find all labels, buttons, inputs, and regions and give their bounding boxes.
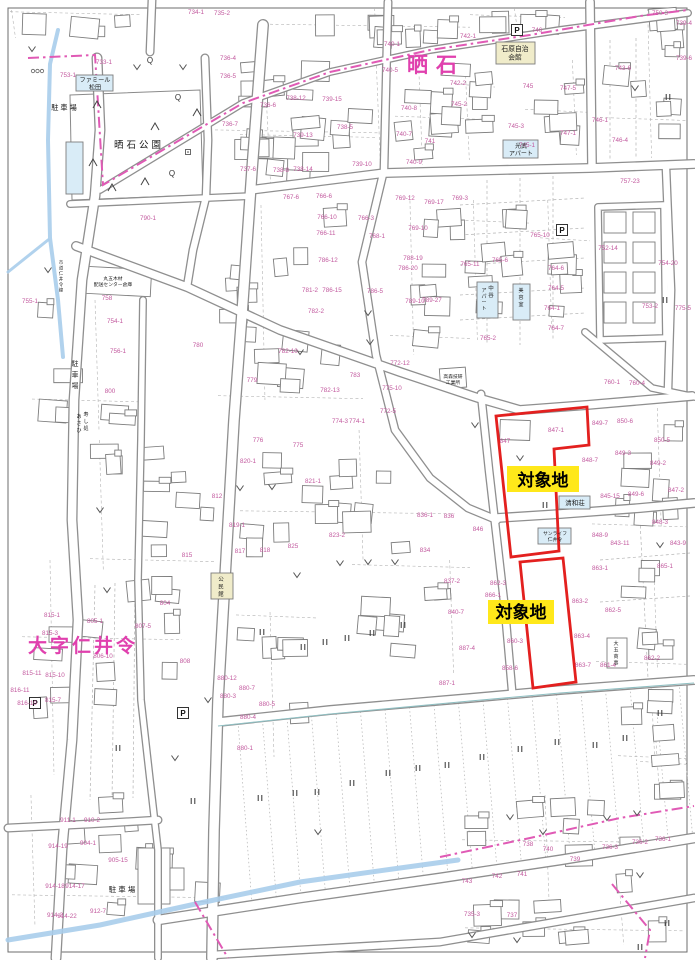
building: [659, 782, 684, 799]
parcel-number: 887-1: [439, 680, 456, 687]
facility-label-char: し: [83, 419, 88, 425]
facility-label-char: 室: [518, 301, 523, 308]
parcel-number: 850-5: [654, 437, 671, 444]
building: [604, 302, 626, 323]
parcel-number: 776: [253, 437, 264, 444]
broadleaf-tree-symbol: Q: [169, 169, 175, 178]
building: [441, 107, 461, 126]
parcel-number: 736-2: [632, 839, 649, 846]
parcel-number: 779: [247, 377, 258, 384]
building-labeled: [66, 142, 83, 194]
facility-label-char: 大: [613, 640, 618, 647]
building: [391, 541, 410, 553]
building: [482, 115, 494, 121]
parcel-number: 849-2: [650, 460, 667, 467]
parcel-number: 782-10: [278, 348, 298, 355]
parcel-number: 786-12: [318, 257, 338, 264]
building: [422, 264, 446, 277]
parcel-number: 789-27: [422, 297, 442, 304]
parcel-number: 745-3: [508, 123, 525, 130]
parcel-number: 775-10: [382, 385, 402, 392]
parcel-number: 910-2: [84, 817, 101, 824]
parcel-number: 904-1: [80, 840, 97, 847]
parcel-number: 766-11: [316, 230, 336, 237]
parcel-number: 740-5: [382, 67, 399, 74]
parcel-number: 849-3: [615, 450, 632, 457]
building: [634, 703, 643, 709]
parcel-number: 880-4: [240, 714, 257, 721]
building: [533, 796, 545, 802]
parcel-number: 737: [507, 912, 518, 919]
parcel-number: 741: [425, 138, 436, 145]
parcel-number: 865-1: [657, 563, 674, 570]
building: [125, 410, 137, 416]
building: [642, 632, 658, 645]
facility-label: 清和荘: [565, 498, 585, 507]
parcel-number: 738-14: [293, 166, 313, 173]
parcel-number: 775-5: [675, 305, 692, 312]
building: [444, 88, 454, 94]
parcel-number: 911-1: [60, 817, 76, 824]
parcel-number: 742-1: [460, 33, 477, 40]
building: [315, 504, 338, 523]
facility-label-char: 車: [72, 370, 79, 379]
building: [663, 640, 674, 646]
facility-label-char: 駐: [72, 359, 79, 368]
building: [339, 459, 357, 477]
parcel-number: 774-1: [349, 418, 366, 425]
parcel-number: 735-3: [464, 911, 481, 918]
facility-label-char: 容: [518, 294, 523, 301]
parcel-number: 764-1: [544, 305, 561, 312]
facility-label: 高森技研: [443, 373, 462, 380]
building: [47, 299, 54, 305]
building: [405, 89, 432, 103]
building: [273, 137, 295, 159]
facility-label-char: 場: [72, 381, 79, 390]
building: [550, 798, 575, 817]
target-site-label-2: 対象地: [488, 600, 554, 624]
parcel-number: 745: [523, 83, 534, 90]
parcel-number: 750-3: [652, 10, 669, 17]
building: [633, 272, 655, 293]
building: [171, 472, 186, 483]
parcel-number: 738: [523, 841, 534, 848]
parcel-number: 743: [462, 878, 473, 885]
facility-label: 駐車場: [51, 103, 79, 112]
parcel-number: 758: [102, 295, 113, 302]
building: [419, 284, 436, 297]
parcel-number: 742-2: [450, 80, 467, 87]
building: [534, 900, 561, 914]
building: [273, 258, 288, 277]
building: [114, 15, 130, 28]
parcel-number: 863-4: [574, 633, 591, 640]
building: [294, 248, 308, 265]
building: [94, 689, 117, 706]
parcel-number: 815-7: [45, 697, 62, 704]
parcel-number: 747-1: [560, 130, 577, 137]
facility-label: 仁井令: [548, 536, 563, 543]
facility-label: 丸五木材: [103, 275, 122, 282]
parcel-number: 786-15: [322, 287, 342, 294]
parcel-number: 807-5: [135, 623, 152, 630]
parcel-number: 836-1: [417, 512, 434, 519]
parcel-number: 740-1: [384, 41, 401, 48]
parcel-number: 769-3: [452, 195, 469, 202]
culvert-symbol: [36, 69, 39, 72]
parcel-number: 790-1: [140, 215, 157, 222]
building: [633, 242, 655, 263]
parcel-number: 847-1: [548, 427, 565, 434]
parcel-number: 765-11: [460, 261, 480, 268]
building: [176, 492, 201, 508]
building: [390, 643, 416, 658]
facility-label-char: 館: [218, 590, 224, 598]
building: [118, 899, 126, 905]
parcel-number: 739-15: [322, 96, 342, 103]
parcel-number: 772-5: [380, 408, 397, 415]
facility-label-char: ト: [481, 306, 486, 312]
facility-label-char: 中: [488, 284, 494, 292]
parcel-number: 817: [235, 548, 246, 555]
building: [263, 453, 282, 469]
parcel-number: 764-6: [548, 265, 565, 272]
parcel-number: 774-3: [332, 418, 349, 425]
facility-label: 松田: [89, 84, 101, 92]
building: [152, 576, 172, 594]
parcel-number: 738-12: [286, 95, 306, 102]
facility-label: 石原自治: [501, 44, 528, 53]
facility-label: ファミール: [80, 77, 111, 84]
parcel-number: 866-1: [485, 592, 502, 599]
building: [450, 16, 459, 22]
parcel-number: 847-2: [668, 487, 685, 494]
parcel-number: 848-3: [652, 519, 669, 526]
parcel-number: 804: [160, 600, 171, 607]
building: [329, 501, 339, 507]
parcel-number: 860-3: [507, 638, 524, 645]
building: [99, 835, 122, 853]
parcel-number: 880-12: [217, 675, 237, 682]
building: [437, 20, 458, 39]
building: [549, 113, 577, 132]
building: [604, 212, 626, 233]
facility-label-char: 谷: [488, 291, 494, 299]
building: [467, 831, 486, 845]
parcel-number: 812: [212, 493, 223, 500]
facility-label: 配送センター倉庫: [94, 281, 133, 288]
building: [428, 327, 439, 333]
building: [648, 921, 666, 942]
parcel-number: 780: [193, 342, 204, 349]
building: [604, 272, 626, 293]
parcel-number: 818: [260, 547, 271, 554]
building: [22, 13, 46, 35]
cadastral-map-page: QQQPPPP733-1753-1736-4736-5736-7736-6790…: [0, 0, 695, 960]
cadastral-map: QQQPPPP733-1753-1736-4736-5736-7736-6790…: [0, 0, 695, 960]
building: [376, 471, 391, 483]
parcel-number: 863-7: [575, 662, 592, 669]
facility-label: 光武: [515, 142, 527, 150]
building: [69, 16, 99, 39]
parcel-number: 815: [182, 552, 193, 559]
building: [675, 421, 683, 427]
parcel-number: 772-12: [390, 360, 410, 367]
parcel-number: 843-11: [610, 540, 630, 547]
parcel-number: 765-2: [480, 335, 497, 342]
culvert-symbol: [31, 69, 34, 72]
parcel-number: 800: [105, 388, 116, 395]
building: [437, 208, 462, 227]
road-surface: [150, 0, 152, 52]
building: [392, 26, 403, 32]
parcel-number: 887-4: [459, 645, 476, 652]
building: [547, 242, 574, 260]
building: [505, 209, 527, 229]
parcel-number: 862-3: [490, 580, 507, 587]
parcel-number: 760-4: [629, 380, 646, 387]
building: [164, 613, 179, 634]
parcel-number: 880-5: [259, 701, 276, 708]
building: [291, 116, 320, 131]
building: [621, 468, 650, 487]
parcel-number: 739-4: [676, 20, 693, 27]
facility-label-char: 五: [613, 648, 618, 654]
facility-label: 会館: [508, 53, 522, 62]
parcel-number: 825: [288, 543, 299, 550]
parcel-number: 820-1: [240, 458, 257, 465]
monument-symbol: [187, 151, 189, 153]
parcel-number: 738-5: [337, 124, 354, 131]
facility-label-char: 美: [518, 287, 523, 294]
building: [639, 568, 655, 582]
parcel-number: 880-1: [237, 745, 254, 752]
parcel-number: 766-6: [316, 193, 333, 200]
building: [415, 25, 422, 31]
building: [479, 812, 489, 818]
parcel-number: 747-5: [560, 85, 577, 92]
parcel-number: 914-18: [45, 883, 65, 890]
facility-label: アパート: [509, 151, 533, 158]
parcel-number: 736-7: [222, 121, 239, 128]
broadleaf-tree-symbol: Q: [175, 93, 181, 102]
facility-label-char: 事: [613, 660, 618, 667]
parcel-number: 782-13: [320, 387, 340, 394]
building: [280, 379, 300, 393]
parcel-number: 880-7: [239, 685, 256, 692]
building: [96, 662, 115, 681]
parcel-number: 805-1: [87, 618, 104, 625]
building: [249, 283, 258, 289]
parcel-number: 740-8: [401, 105, 418, 112]
parcel-number: 736-6: [260, 102, 277, 109]
parcel-number: 786-5: [367, 288, 384, 295]
building: [273, 523, 289, 542]
building: [316, 15, 335, 36]
parcel-number: 739-6: [676, 55, 693, 62]
building: [576, 79, 585, 85]
building: [343, 511, 372, 533]
parking-p-icon: P: [514, 26, 520, 35]
parcel-number: 816-10: [17, 700, 37, 707]
parcel-number: 845-15: [600, 493, 620, 500]
parcel-number: 788-19: [403, 255, 423, 262]
building: [113, 793, 124, 799]
building: [656, 101, 671, 116]
parcel-number: 781-2: [302, 287, 319, 294]
parcel-number: 733-1: [96, 59, 113, 66]
facility-label: サンライフ: [543, 531, 567, 537]
facility-label-char: 仁: [59, 270, 64, 276]
parcel-number: 914-17: [65, 883, 85, 890]
parcel-number: 757-23: [620, 178, 640, 185]
parcel-number: 821-1: [305, 478, 322, 485]
parcel-number: 815-1: [44, 612, 61, 619]
parcel-number: 815-11: [22, 670, 42, 677]
building: [106, 454, 122, 475]
parcel-number: 775: [293, 442, 304, 449]
building: [475, 72, 493, 86]
parcel-number: 737-6: [240, 166, 257, 173]
parcel-number: 739: [570, 856, 581, 863]
parcel-number: 863-2: [572, 598, 589, 605]
parcel-number: 840-7: [448, 609, 465, 616]
facility-label-char: 線: [59, 287, 64, 293]
road-surface: [590, 2, 592, 166]
parcel-number: 739-13: [293, 132, 313, 139]
building: [140, 520, 168, 537]
parcel-number: 736-1: [655, 836, 672, 843]
building: [173, 609, 180, 615]
parcel-number: 734-1: [188, 9, 205, 16]
parcel-number: 862-2: [644, 655, 661, 662]
building: [659, 124, 680, 139]
parcel-number: 816-11: [10, 687, 30, 694]
target-site-label-1: 対象地: [507, 466, 579, 492]
building: [406, 29, 421, 48]
facility-label-char: 寿: [83, 411, 88, 418]
parcel-number: 862-5: [605, 607, 622, 614]
parcel-number: 786-20: [398, 265, 418, 272]
parcel-number: 764-5: [548, 285, 565, 292]
parcel-number: 735-2: [214, 10, 231, 17]
parcel-number: 746-1: [592, 117, 609, 124]
parcel-number: 742: [492, 873, 503, 880]
parcel-number: 766-3: [358, 215, 375, 222]
parcel-number: 740-7: [396, 131, 413, 138]
building: [626, 870, 633, 876]
parcel-number: 736-4: [220, 55, 237, 62]
facility-label-char: 商: [613, 653, 618, 660]
parcel-number: 823-2: [329, 532, 346, 539]
parcel-number: 849-6: [628, 491, 645, 498]
building: [254, 349, 279, 364]
parcel-number: 765-6: [492, 257, 509, 264]
building: [536, 11, 547, 17]
building: [653, 724, 675, 741]
parcel-number: 837-2: [444, 578, 461, 585]
parking-p-icon: P: [559, 226, 565, 235]
parcel-number: 755-1: [22, 298, 39, 305]
building: [621, 707, 642, 725]
parcel-number: 836: [444, 513, 455, 520]
building: [648, 689, 673, 702]
building: [621, 586, 646, 598]
parcel-number: 850-6: [617, 418, 634, 425]
parcel-number: 848-7: [582, 457, 599, 464]
area-name-sarashiishi: 晒石: [407, 54, 465, 77]
parcel-number: 754-20: [658, 260, 678, 267]
parcel-number: 745-2: [451, 101, 468, 108]
parcel-number: 849-7: [592, 420, 609, 427]
parcel-number: 740: [543, 846, 554, 853]
area-name-oaza-niirei: 大字仁井令: [28, 634, 138, 657]
culvert-symbol: [40, 69, 43, 72]
building: [423, 30, 438, 44]
parcel-number: 736-5: [220, 73, 237, 80]
facility-label-char: 民: [218, 584, 224, 591]
parcel-number: 741: [517, 871, 528, 878]
parcel-number: 914-22: [57, 913, 77, 920]
parcel-number: 765-10: [530, 232, 550, 239]
parcel-number: 912-7: [90, 908, 107, 915]
parcel-number: 843-9: [670, 540, 687, 547]
building: [534, 100, 558, 114]
building: [633, 212, 655, 233]
parcel-number: 782-2: [308, 308, 325, 315]
parcel-number: 746-4: [612, 137, 629, 144]
parcel-number: 739-10: [352, 161, 372, 168]
building: [348, 109, 373, 124]
facility-label: 駐車場: [109, 884, 138, 894]
building: [565, 929, 589, 945]
building: [115, 450, 121, 456]
building: [281, 468, 293, 474]
building: [514, 251, 523, 257]
parcel-number: 767-6: [283, 194, 300, 201]
building: [159, 477, 171, 483]
target-label-text: 対象地: [517, 470, 569, 490]
building: [170, 868, 184, 890]
building: [143, 446, 164, 460]
parcel-number: 743-6: [615, 65, 632, 72]
facility-label-char: ひ: [76, 428, 81, 434]
parcel-number: 740-9: [406, 159, 423, 166]
facility-label-char: 処: [83, 425, 88, 432]
building: [587, 800, 604, 816]
parcel-number: 753-1: [60, 72, 77, 79]
building: [237, 628, 255, 641]
parcel-number: 738-8: [273, 167, 290, 174]
facility-label-char: 公: [218, 577, 224, 583]
building: [563, 818, 579, 834]
facility-label-char: あ: [76, 414, 81, 420]
broadleaf-tree-symbol: Q: [147, 56, 153, 65]
parcel-number: 756-1: [110, 348, 127, 355]
building: [674, 42, 681, 48]
parcel-number: 783: [350, 372, 361, 379]
parking-p-icon: P: [180, 709, 186, 718]
parcel-number: 760-1: [604, 379, 621, 386]
building: [337, 204, 347, 210]
building: [647, 701, 672, 714]
building: [274, 76, 285, 82]
building: [480, 17, 506, 33]
facility-label: 工業所: [446, 379, 461, 386]
parcel-number: 769-17: [424, 199, 444, 206]
parcel-number: 858-6: [502, 665, 519, 672]
